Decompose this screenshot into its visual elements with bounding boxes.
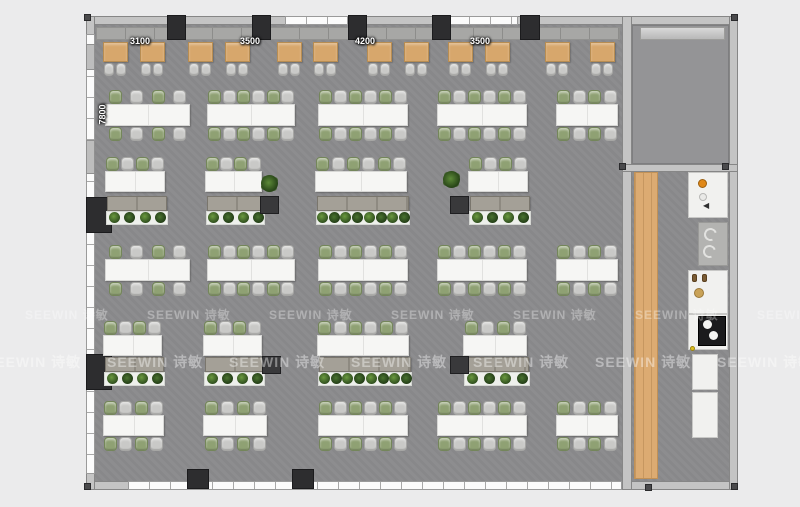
dimension-layer: 31003500420035007800: [0, 0, 800, 507]
dimension-label: 4200: [345, 36, 385, 47]
dimension-label: 3100: [120, 36, 160, 47]
dimension-label: 3500: [230, 36, 270, 47]
floorplan-canvas: ◀ SEEWIN 诗敏SEEWIN 诗敏SEEWIN 诗敏SEEWIN 诗敏SE…: [0, 0, 800, 507]
dimension-label: 3500: [460, 36, 500, 47]
dimension-label-vertical: 7800: [98, 95, 109, 135]
